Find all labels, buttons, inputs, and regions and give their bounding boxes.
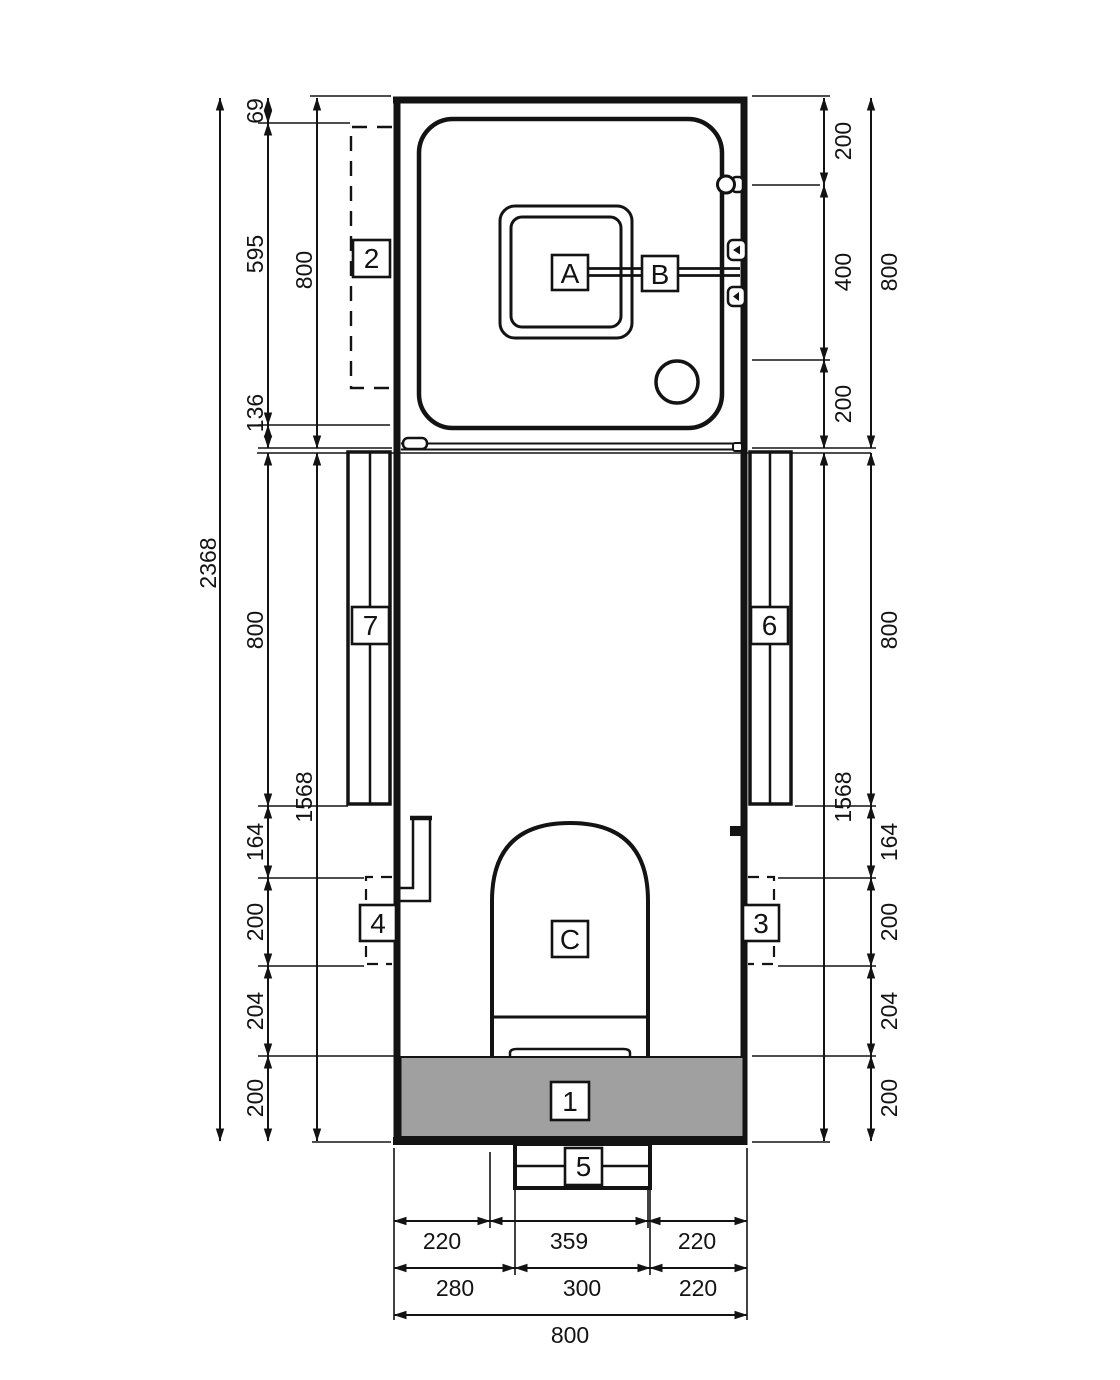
dim-bottom-row2-seg1: 300 [563,1275,601,1301]
dim-left-top-seg0: 69 [242,98,268,124]
callout-C: C [560,924,580,955]
dim-left-bottom-seg0: 800 [242,611,268,649]
dim-bottom-row2-seg0: 280 [436,1275,474,1301]
dim-left-top-seg1: 595 [242,235,268,273]
dim-bottom-total: 800 [551,1322,589,1348]
dim-left-bottom-seg4: 200 [242,1079,268,1117]
callout-B: B [651,259,670,290]
dim-left-bottom-seg3: 204 [242,992,268,1031]
callout-1: 1 [562,1086,578,1117]
threshold-stop [733,443,742,451]
dim-bottom-row1-seg2: 220 [678,1228,716,1254]
technical-drawing-page: 2368 69 595 136 800 800 164 200 204 200 … [0,0,1120,1380]
door-knob-icon [718,176,735,193]
dim-bottom-row1-seg1: 359 [550,1228,588,1254]
wall-fixing-3 [730,826,746,836]
dim-left-bottom-seg1: 164 [242,823,268,862]
dim-right-bottom-seg3: 204 [876,992,902,1031]
dim-right-top-seg2: 200 [830,385,856,423]
drawing-canvas: 2368 69 595 136 800 800 164 200 204 200 … [0,0,1120,1380]
dim-right-top-total: 800 [876,253,902,291]
dim-left-bottom-total: 1568 [291,771,317,822]
callout-2: 2 [364,243,380,274]
callout-6: 6 [762,610,778,641]
dim-left-top-total: 800 [291,251,317,289]
dim-left-top-seg2: 136 [242,394,268,432]
callout-4: 4 [370,908,386,939]
drain-icon [656,361,698,403]
dim-left-bottom-seg2: 200 [242,903,268,941]
dim-bottom-row2-seg2: 220 [679,1275,717,1301]
dim-overall-height: 2368 [195,537,221,588]
dim-right-bottom-total: 1568 [830,771,856,822]
dim-bottom-row1-seg0: 220 [423,1228,461,1254]
threshold-roller [403,438,427,449]
callout-3: 3 [753,908,769,939]
callout-7: 7 [363,610,379,641]
dim-right-top-seg0: 200 [830,122,856,160]
dim-right-bottom-seg1: 164 [876,823,902,862]
callout-A: A [561,258,580,289]
dim-right-bottom-seg0: 800 [876,611,902,649]
callout-5: 5 [576,1151,592,1182]
dim-right-bottom-seg4: 200 [876,1079,902,1117]
flush-pipe [400,818,432,901]
dim-right-bottom-seg2: 200 [876,903,902,941]
dim-right-top-seg1: 400 [830,253,856,291]
